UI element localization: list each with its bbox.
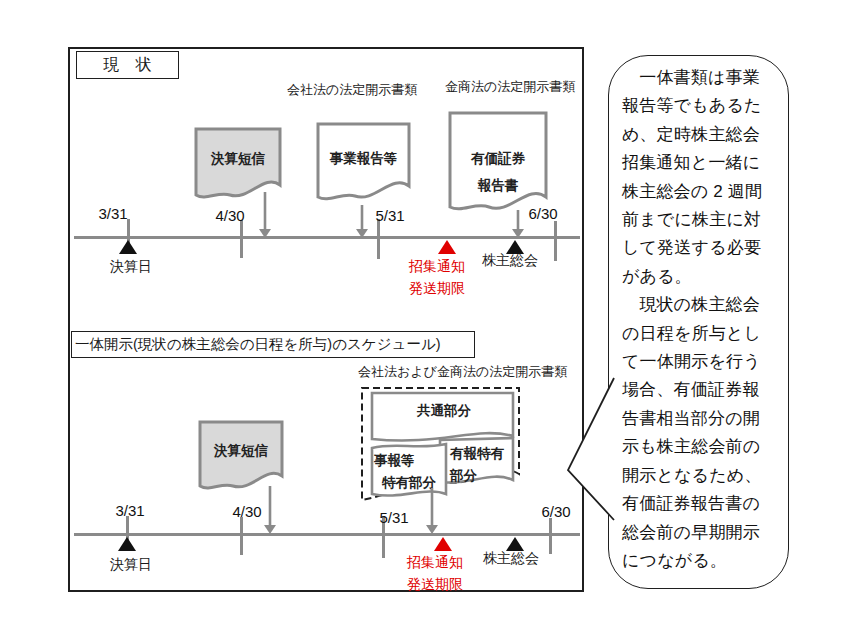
yuho-label: 有価証券 報告書 xyxy=(448,145,548,199)
callout-paragraph-2: 現状の株主総会の日程を所与として一体開示を行う場合、有価証券報告書相当部分の開示… xyxy=(622,291,770,575)
jihou-specific-label-line1: 事報等 xyxy=(372,450,448,472)
agm-label: 株主総会 xyxy=(482,252,538,270)
notice-deadline-triangle xyxy=(438,240,456,254)
settlement-day-triangle xyxy=(119,240,137,254)
notice-deadline-label2-line1: 招集通知 xyxy=(407,554,463,572)
agm-triangle-2 xyxy=(506,537,524,551)
page: { "colors": { "accent_red": "#e00000", "… xyxy=(0,0,860,627)
callout-text: 一体書類は事業報告等でもあるため、定時株主総会招集通知と一緒に株主総会の 2 週… xyxy=(622,64,770,575)
tick-5-31 xyxy=(377,219,380,259)
arrow-yuho-to-timeline xyxy=(510,210,526,238)
yuho-specific-label-line1: 有報特有 xyxy=(450,443,520,465)
jigyo-houkoku-label: 事業報告等 xyxy=(316,150,411,168)
notice-deadline-triangle-2 xyxy=(434,537,452,551)
yuho-label-line1: 有価証券 xyxy=(448,145,548,172)
notice-deadline-label-line1: 招集通知 xyxy=(409,258,465,276)
arrow-jigyo-to-timeline xyxy=(354,205,370,238)
combined-law-docs-label: 会社法および金商法の法定開示書類 xyxy=(358,363,567,381)
kessan-tanshin-label: 決算短信 xyxy=(194,150,282,168)
arrow-kessan-to-timeline xyxy=(257,192,273,238)
current-state-title: 現 状 xyxy=(104,55,152,76)
integrated-schedule-heading-box: 一体開示(現状の株主総会の日程を所与)のスケジュール) xyxy=(71,331,475,358)
callout-paragraph-1: 一体書類は事業報告等でもあるため、定時株主総会招集通知と一緒に株主総会の 2 週… xyxy=(622,64,770,291)
tick2-4-30 xyxy=(240,517,243,555)
notice-deadline-label-line2: 発送期限 xyxy=(409,280,465,298)
date-label: 4/30 xyxy=(232,503,261,520)
company-law-docs-label: 会社法の法定開示書類 xyxy=(287,81,417,99)
date-label: 5/31 xyxy=(379,509,408,526)
common-part-label: 共通部分 xyxy=(384,402,504,420)
yuho-specific-label: 有報特有 部分 xyxy=(450,443,520,487)
notice-deadline-label2-line2: 発送期限 xyxy=(407,576,463,594)
timeline-integrated xyxy=(74,533,580,536)
tick2-6-30 xyxy=(549,518,552,554)
arrow-kessan2-to-timeline xyxy=(262,486,278,534)
integrated-schedule-heading: 一体開示(現状の株主総会の日程を所与)のスケジュール) xyxy=(75,335,441,354)
yuho-label-line2: 報告書 xyxy=(448,172,548,199)
settlement-day-label: 決算日 xyxy=(110,258,152,276)
settlement-day-triangle-2 xyxy=(118,537,136,551)
timeline-current xyxy=(74,236,580,239)
settlement-day-label-2: 決算日 xyxy=(110,556,152,574)
yuho-specific-label-line2: 部分 xyxy=(450,465,520,487)
current-state-title-box: 現 状 xyxy=(76,51,179,79)
callout-tail xyxy=(556,370,618,530)
date-label: 4/30 xyxy=(215,207,244,224)
kessan-tanshin-label-2: 決算短信 xyxy=(198,442,284,460)
agm-label-2: 株主総会 xyxy=(483,550,539,568)
arrow-bundle-to-timeline xyxy=(424,488,440,534)
date-label: 3/31 xyxy=(115,502,144,519)
date-label: 6/30 xyxy=(528,205,557,222)
date-label: 5/31 xyxy=(375,207,404,224)
tick-4-30 xyxy=(240,220,243,258)
fiea-docs-label: 金商法の法定開示書類 xyxy=(445,78,575,96)
date-label: 3/31 xyxy=(98,205,127,222)
tick-6-30 xyxy=(554,221,557,261)
